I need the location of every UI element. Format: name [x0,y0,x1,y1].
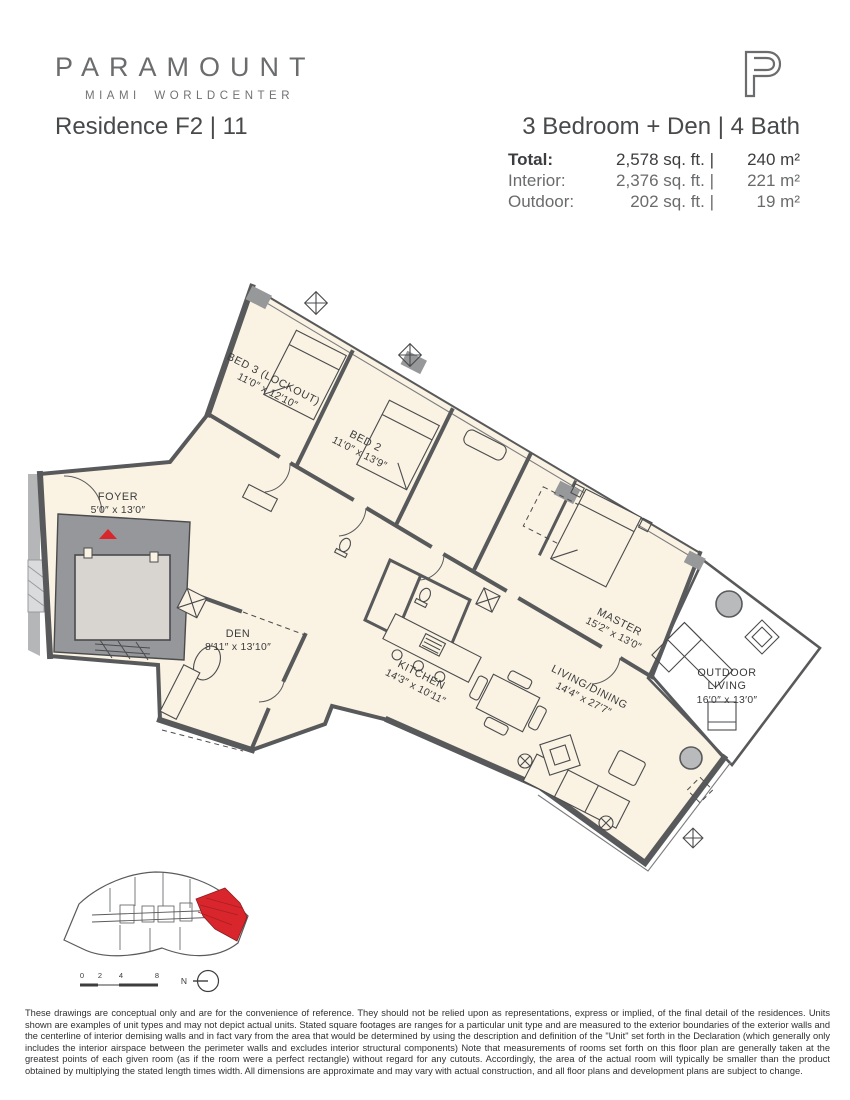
svg-text:5′0″ x 13′0″: 5′0″ x 13′0″ [91,505,146,516]
svg-text:4: 4 [119,971,123,980]
building-key-map: 0 2 4 8 N [50,858,270,1006]
svg-text:8: 8 [155,971,159,980]
stat-label: Total: [508,149,600,170]
floorplan-page: PARAMOUNT MIAMI WORLDCENTER Residence F2… [0,0,850,1100]
area-stats: Total: 2,578 sq. ft. | 240 m² Interior: … [508,149,800,212]
floor-plan: BED 3 (LOCKOUT) 11′0″ x 12′10″ BED 2 11′… [0,262,850,882]
svg-text:N: N [181,976,187,986]
svg-text:2: 2 [98,971,102,980]
brand-name: PARAMOUNT [55,52,316,83]
svg-text:8′11″ x 13′10″: 8′11″ x 13′10″ [205,642,271,653]
stats-row-outdoor: Outdoor: 202 sq. ft. | 19 m² [508,191,800,212]
brand-block: PARAMOUNT MIAMI WORLDCENTER [55,52,316,102]
stat-sqft: 2,578 sq. ft. | [600,149,714,170]
legal-disclaimer: These drawings are conceptual only and a… [25,1008,830,1077]
stat-m2: 221 m² [714,170,800,191]
stats-row-total: Total: 2,578 sq. ft. | 240 m² [508,149,800,170]
svg-text:DEN: DEN [226,628,251,640]
elevator-core [54,514,190,660]
stat-label: Interior: [508,170,600,191]
residence-title: Residence F2 | 11 [55,113,248,141]
svg-text:FOYER: FOYER [98,491,138,503]
scale-bar: 0 2 4 8 [80,971,159,987]
stat-label: Outdoor: [508,191,600,212]
unit-config-title: 3 Bedroom + Den | 4 Bath [522,113,800,141]
stat-m2: 19 m² [714,191,800,212]
svg-text:0: 0 [80,971,84,980]
brand-tagline: MIAMI WORLDCENTER [55,90,316,102]
building-footprint [64,872,248,956]
paramount-p-logo-icon [740,48,782,98]
svg-text:LIVING: LIVING [707,680,746,692]
stats-row-interior: Interior: 2,376 sq. ft. | 221 m² [508,170,800,191]
north-arrow-icon: N [181,971,219,992]
stat-m2: 240 m² [714,149,800,170]
svg-text:OUTDOOR: OUTDOOR [697,667,756,679]
stat-sqft: 202 sq. ft. | [600,191,714,212]
stat-sqft: 2,376 sq. ft. | [600,170,714,191]
svg-text:16′0″ x 13′0″: 16′0″ x 13′0″ [697,695,758,706]
